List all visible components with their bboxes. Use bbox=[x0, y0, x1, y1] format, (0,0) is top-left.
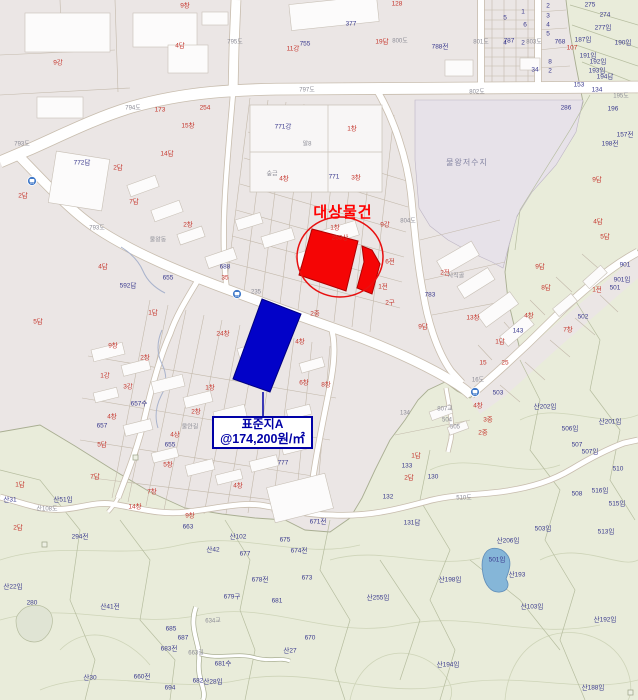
landmark-square bbox=[628, 690, 633, 695]
parcel-label: 507 bbox=[572, 442, 583, 449]
parcel-label: 4창 bbox=[279, 175, 289, 183]
parcel-label: 660전 bbox=[134, 672, 151, 681]
parcel-label: 산193 bbox=[509, 570, 526, 579]
parcel-label: 694 bbox=[165, 685, 176, 692]
parcel-label: 산102 bbox=[230, 532, 247, 541]
parcel-label: 677 bbox=[240, 551, 251, 558]
road-label: 16도 bbox=[472, 377, 485, 384]
parcel-label: 5창 bbox=[163, 461, 173, 469]
road-label: 803도 bbox=[526, 39, 542, 46]
parcel-label: 107 bbox=[567, 45, 578, 52]
building bbox=[202, 12, 228, 25]
bus-stop-icon bbox=[238, 295, 239, 296]
road-label: 물안길 bbox=[182, 423, 199, 431]
parcel-label: 8창 bbox=[321, 381, 331, 389]
parcel-label: 14창 bbox=[128, 503, 141, 511]
parcel-label: 134 bbox=[592, 87, 603, 94]
parcel-label: 2답 bbox=[113, 164, 123, 172]
parcel-label: 153 bbox=[574, 82, 585, 89]
parcel-label: 2답 bbox=[18, 192, 28, 200]
parcel-label: 산194임 bbox=[437, 660, 460, 669]
road-label: 산108도 bbox=[36, 505, 58, 513]
parcel-label: 1답 bbox=[15, 481, 25, 489]
parcel-label: 산27 bbox=[283, 646, 297, 655]
parcel-label: 510 bbox=[613, 466, 624, 473]
road-label: 물왕동 bbox=[150, 236, 167, 244]
parcel-label: 901임 bbox=[614, 276, 631, 284]
parcel-label: 671전 bbox=[310, 517, 327, 526]
parcel-label: 산198임 bbox=[439, 575, 462, 584]
building bbox=[37, 97, 83, 118]
parcel-label: 3중 bbox=[483, 416, 493, 424]
parcel-label: 2중 bbox=[478, 429, 488, 437]
parcel-label: 1답 bbox=[148, 309, 158, 317]
parcel-label: 277임 bbox=[595, 24, 612, 32]
road-label: 510도 bbox=[456, 495, 472, 502]
parcel-label: 157전 bbox=[617, 130, 634, 139]
parcel-label: 515임 bbox=[609, 500, 626, 508]
parcel-label: 산201임 bbox=[599, 417, 622, 426]
parcel-label: 1창 bbox=[330, 224, 340, 232]
parcel-label: 377 bbox=[346, 21, 357, 28]
road-label: 505 bbox=[450, 425, 461, 431]
parcel-label: 9답 bbox=[418, 323, 428, 331]
parcel-label: 산22임 bbox=[3, 582, 22, 591]
parcel-label: 503임 bbox=[535, 525, 552, 533]
parcel-label: 768 bbox=[555, 39, 566, 46]
road-label: 134 bbox=[400, 411, 411, 417]
parcel-label: 5답 bbox=[600, 233, 610, 241]
parcel-label: 1창 bbox=[205, 384, 215, 392]
parcel-label: 산30 bbox=[83, 673, 97, 682]
road-label: 235 bbox=[251, 290, 262, 296]
parcel-label: 산206임 bbox=[497, 536, 520, 545]
parcel-label: 9창 bbox=[185, 512, 195, 520]
bus-stop-icon bbox=[235, 295, 236, 296]
parcel-label: 4답 bbox=[593, 218, 603, 226]
parcel-label: 3 bbox=[546, 13, 550, 20]
parcel-label: 131답 bbox=[404, 519, 421, 527]
parcel-label: 4 bbox=[503, 40, 507, 47]
parcel-label: 755 bbox=[300, 41, 311, 48]
parcel-label: 7창 bbox=[563, 326, 573, 334]
parcel-label: 24창 bbox=[216, 330, 229, 338]
parcel-label: 655 bbox=[165, 442, 176, 449]
parcel-label: 9답 bbox=[592, 176, 602, 184]
parcel-label: 275 bbox=[585, 2, 596, 9]
parcel-label: 7창 bbox=[147, 488, 157, 496]
road-label: 알8 bbox=[303, 140, 313, 148]
parcel-label: 502 bbox=[578, 314, 589, 321]
landmark-square bbox=[42, 542, 47, 547]
parcel-label: 9강 bbox=[53, 58, 63, 67]
parcel-label: 772답 bbox=[74, 159, 91, 167]
parcel-label: 7답 bbox=[129, 198, 139, 206]
parcel-label: 190임 bbox=[615, 39, 632, 47]
parcel-label: 2창 bbox=[140, 354, 150, 362]
parcel-label: 516임 bbox=[592, 487, 609, 495]
road-label: 사직골 bbox=[448, 272, 465, 280]
parcel-label: 5답 bbox=[33, 318, 43, 326]
parcel-label: 4답 bbox=[98, 263, 108, 271]
parcel-label: 655 bbox=[163, 275, 174, 282]
building bbox=[25, 13, 110, 52]
parcel-label: 2구 bbox=[385, 299, 395, 307]
parcel-label: 6창 bbox=[299, 379, 309, 387]
road-label: 797도 bbox=[299, 87, 315, 94]
subject-property-label: 대상물건 bbox=[283, 201, 403, 222]
parcel-label: 1답 bbox=[411, 452, 421, 460]
parcel-label: 294전 bbox=[72, 532, 89, 541]
parcel-label: 8 bbox=[548, 59, 552, 66]
parcel-label: 2 bbox=[548, 68, 552, 75]
parcel-label: 901 bbox=[620, 262, 631, 269]
road-label: 634교 bbox=[205, 618, 221, 625]
parcel-label: 4창 bbox=[233, 482, 243, 490]
parcel-label: 14답 bbox=[160, 150, 173, 158]
parcel-label: 286 bbox=[561, 105, 572, 112]
parcel-label: 2창 bbox=[191, 408, 201, 416]
bus-stop-icon bbox=[30, 179, 35, 182]
cadastral-map: 9강9창4답11강19답12810715창25417314답1창4창3창2답2답… bbox=[0, 0, 638, 700]
parcel-label: 7답 bbox=[90, 473, 100, 481]
parcel-label: 1답 bbox=[495, 338, 505, 346]
factory-block bbox=[250, 105, 382, 192]
parcel-label: 4상 bbox=[170, 430, 180, 439]
parcel-label: 6 bbox=[523, 22, 527, 29]
parcel-label: 508 bbox=[572, 491, 583, 498]
parcel-label: 254 bbox=[200, 105, 211, 112]
parcel-label: 2창 bbox=[183, 221, 193, 229]
parcel-label: 592답 bbox=[120, 282, 137, 290]
parcel-label: 4창 bbox=[295, 338, 305, 346]
parcel-label: 4답 bbox=[175, 42, 185, 50]
road-label: 663길 bbox=[188, 649, 204, 657]
parcel-label: 1 bbox=[521, 9, 525, 16]
parcel-label: 산103임 bbox=[521, 602, 544, 611]
parcel-label: 4창 bbox=[473, 402, 483, 410]
parcel-label: 128 bbox=[392, 1, 403, 8]
parcel-label: 산28임 bbox=[203, 677, 222, 686]
parcel-label: 681수 bbox=[215, 660, 232, 668]
road bbox=[233, 0, 236, 94]
parcel-label: 682 bbox=[193, 678, 204, 685]
parcel-label: 198전 bbox=[602, 139, 619, 148]
road-label: 802도 bbox=[469, 89, 485, 96]
parcel-label: 2중 bbox=[310, 310, 320, 318]
parcel-label: 192임 bbox=[590, 58, 607, 66]
parcel-label: 9창 bbox=[108, 342, 118, 350]
parcel-label: 679구 bbox=[224, 593, 241, 601]
road-label: 793도 bbox=[14, 141, 30, 148]
parcel-label: 670 bbox=[305, 635, 316, 642]
building bbox=[133, 13, 197, 47]
parcel-label: 274 bbox=[600, 12, 611, 19]
parcel-label: 187임 bbox=[575, 36, 592, 44]
parcel-label: 501 bbox=[610, 285, 621, 292]
parcel-label: 675 bbox=[280, 537, 291, 544]
landmark-square bbox=[133, 455, 138, 460]
standard-lot-price: @174,200원/㎡ bbox=[220, 432, 305, 446]
bus-stop-icon bbox=[473, 390, 478, 393]
parcel-label: 5 bbox=[546, 31, 550, 38]
parcel-label: 130 bbox=[428, 474, 439, 481]
parcel-label: 280 bbox=[27, 600, 38, 607]
parcel-label: 674전 bbox=[291, 546, 308, 555]
parcel-label: 35 bbox=[221, 275, 229, 282]
parcel-label: 507임 bbox=[582, 448, 599, 456]
road-label: 801도 bbox=[473, 39, 489, 46]
parcel-label: 657 bbox=[97, 423, 108, 430]
parcel-label: 783 bbox=[425, 292, 436, 299]
parcel-label: 771 bbox=[329, 174, 340, 181]
building bbox=[168, 45, 208, 73]
parcel-label: 2 bbox=[546, 3, 550, 10]
parcel-label: 771강 bbox=[275, 122, 292, 131]
parcel-label: 683전 bbox=[161, 644, 178, 653]
parcel-label: 산42 bbox=[206, 545, 220, 554]
road-label: 807교 bbox=[437, 406, 453, 413]
parcel-label: 4창 bbox=[107, 413, 117, 421]
parcel-label: 13창 bbox=[466, 314, 479, 322]
parcel-label: 1창 bbox=[347, 125, 357, 133]
parcel-label: 34 bbox=[531, 67, 539, 74]
parcel-label: 9답 bbox=[535, 263, 545, 271]
parcel-label: 1전 bbox=[592, 285, 602, 294]
parcel-label: 143 bbox=[513, 328, 524, 335]
parcel-label: 506임 bbox=[562, 425, 579, 433]
parcel-label: 2답 bbox=[404, 474, 414, 482]
parcel-label: 4창 bbox=[524, 312, 534, 320]
road-label: 795도 bbox=[227, 39, 243, 46]
road-label: 794도 bbox=[125, 105, 141, 112]
parcel-label: 687 bbox=[178, 635, 189, 642]
parcel-label: 산255임 bbox=[367, 593, 390, 602]
parcel-label: 194답 bbox=[597, 73, 614, 81]
parcel-label: 513임 bbox=[598, 528, 615, 536]
parcel-label: 산192임 bbox=[594, 615, 617, 624]
parcel-label: 2답 bbox=[13, 524, 23, 532]
parcel-label: 133 bbox=[402, 463, 413, 470]
road-label: 504 bbox=[442, 418, 453, 424]
road-label: 195도 bbox=[613, 93, 629, 100]
parcel-label: 253상 bbox=[332, 233, 349, 242]
cadastral-map-page: 9강9창4답11강19답12810715창25417314답1창4창3창2답2답… bbox=[0, 0, 638, 700]
parcel-label: 678전 bbox=[252, 575, 269, 584]
bus-stop-icon bbox=[473, 393, 474, 394]
parcel-label: 산31 bbox=[3, 495, 17, 504]
parcel-label: 9창 bbox=[180, 2, 190, 10]
bus-stop-icon bbox=[30, 182, 31, 183]
parcel-label: 25 bbox=[501, 360, 509, 367]
parcel-label: 5답 bbox=[97, 441, 107, 449]
road-label: 793도 bbox=[89, 225, 105, 232]
parcel-label: 173 bbox=[155, 107, 166, 114]
bus-stop-icon bbox=[33, 182, 34, 183]
parcel-label: 3강 bbox=[123, 382, 133, 391]
parcel-label: 777 bbox=[278, 460, 289, 467]
parcel-label: 688 bbox=[220, 264, 231, 271]
parcel-label: 681 bbox=[272, 598, 283, 605]
parcel-label: 11강 bbox=[287, 44, 300, 53]
parcel-label: 1전 bbox=[378, 282, 388, 291]
parcel-label: 3창 bbox=[351, 174, 361, 182]
parcel-label: 8답 bbox=[541, 284, 551, 292]
parcel-label: 5 bbox=[503, 15, 507, 22]
parcel-label: 788전 bbox=[432, 42, 449, 51]
parcel-label: 501임 bbox=[489, 556, 506, 564]
parcel-label: 673 bbox=[302, 575, 313, 582]
parcel-label: 196 bbox=[608, 106, 619, 113]
parcel-label: 503 bbox=[493, 390, 504, 397]
parcel-label: 산41전 bbox=[100, 602, 119, 611]
road-label: 800도 bbox=[392, 38, 408, 45]
parcel-label: 2 bbox=[521, 40, 525, 47]
parcel-label: 19답 bbox=[375, 38, 388, 46]
parcel-label: 4 bbox=[546, 22, 550, 29]
parcel-label: 산51임 bbox=[53, 495, 72, 504]
building bbox=[445, 60, 473, 76]
standard-lot-callout: 표준지A @174,200원/㎡ bbox=[212, 416, 313, 449]
reservoir-label: 물왕저수지 bbox=[446, 158, 488, 167]
parcel-label: 15창 bbox=[181, 122, 194, 130]
parcel-label: 657수 bbox=[131, 400, 148, 408]
bus-stop-icon bbox=[235, 292, 240, 295]
parcel-label: 산202임 bbox=[534, 402, 557, 411]
bus-stop-icon bbox=[476, 393, 477, 394]
standard-lot-name: 표준지A bbox=[242, 418, 284, 432]
parcel-label: 산188임 bbox=[582, 683, 605, 692]
parcel-label: 663 bbox=[183, 524, 194, 531]
parcel-label: 15 bbox=[479, 360, 487, 367]
parcel-label: 132 bbox=[383, 494, 394, 501]
parcel-label: 1강 bbox=[100, 371, 110, 380]
road-label: 숲금 bbox=[266, 170, 278, 178]
parcel-label: 6전 bbox=[385, 257, 395, 266]
parcel-label: 685 bbox=[166, 626, 177, 633]
